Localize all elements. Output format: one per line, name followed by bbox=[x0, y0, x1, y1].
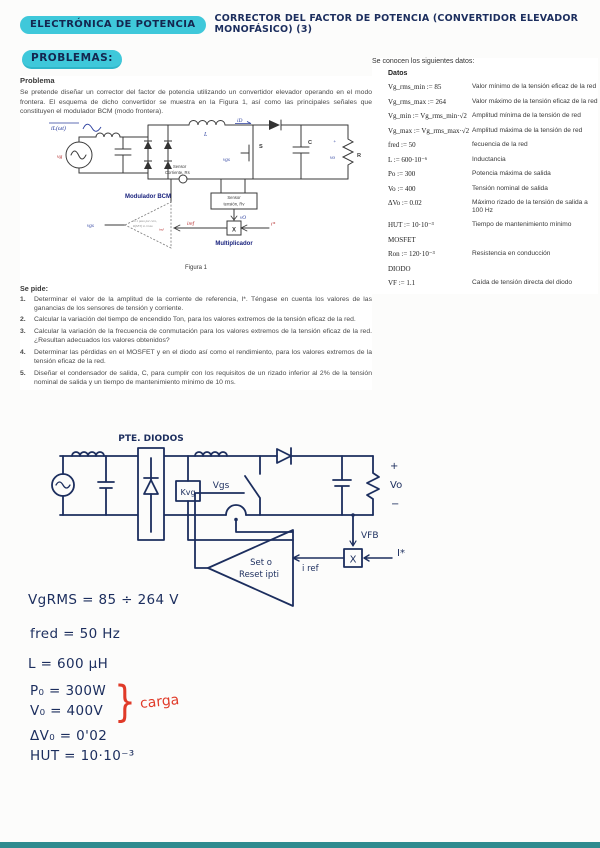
datos-row: Vg_rms_max := 264Valor máximo de la tens… bbox=[388, 98, 598, 106]
datos-desc: Tensión nominal de salida bbox=[472, 185, 598, 193]
datos-desc: Valor mínimo de la tensión eficaz de la … bbox=[472, 83, 598, 91]
note-vo: V₀ = 400V bbox=[30, 702, 106, 722]
label-sensor-v-1: Sensor bbox=[227, 195, 241, 200]
course-tag: ELECTRÓNICA DE POTENCIA bbox=[20, 16, 206, 34]
datos-expr: MOSFET bbox=[388, 236, 472, 244]
datos-desc: Potencia máxima de salida bbox=[472, 170, 598, 178]
datos-expr: DIODO bbox=[388, 265, 472, 273]
se-pide-heading: Se pide: bbox=[20, 284, 372, 293]
datos-row: Ron := 120·10⁻³Resistencia en conducción bbox=[388, 250, 598, 258]
label-C: C bbox=[308, 140, 312, 146]
datos-expr: Vo := 400 bbox=[388, 185, 472, 193]
datos-expr: HUT := 10·10⁻³ bbox=[388, 221, 472, 229]
label-il: iL(ωt) bbox=[51, 125, 66, 132]
datos-expr: Vg_max := Vg_rms_max·√2 bbox=[388, 127, 472, 135]
item-text: Determinar el valor de la amplitud de la… bbox=[34, 295, 372, 313]
page-header: ELECTRÓNICA DE POTENCIA CORRECTOR DEL FA… bbox=[20, 14, 590, 36]
note-vgrms: VgRMS = 85 ÷ 264 V bbox=[28, 592, 179, 608]
note-po: P₀ = 300W bbox=[30, 682, 106, 702]
page-title: CORRECTOR DEL FACTOR DE POTENCIA (CONVER… bbox=[215, 14, 590, 36]
page-bottom-bar bbox=[0, 842, 600, 848]
problem-body: Se pretende diseñar un corrector del fac… bbox=[20, 88, 372, 117]
figura-1-caption: Figura 1 bbox=[185, 265, 208, 271]
note-fred: fred = 50 Hz bbox=[30, 626, 120, 642]
datos-row: Vg_rms_min := 85Valor mínimo de la tensi… bbox=[388, 83, 598, 91]
datos-heading: Se conocen los siguientes datos: bbox=[372, 58, 598, 65]
datos-expr: Ron := 120·10⁻³ bbox=[388, 250, 472, 258]
label-vo-plus: + bbox=[333, 140, 336, 145]
datos-expr: Vg_rms_max := 264 bbox=[388, 98, 472, 106]
datos-expr: Po := 300 bbox=[388, 170, 472, 178]
datos-desc bbox=[472, 265, 598, 273]
datos-desc: Caída de tensión directa del diodo bbox=[472, 279, 598, 287]
item-number: 2. bbox=[20, 315, 34, 324]
label-iref-sketch: i ref bbox=[302, 564, 320, 574]
datos-desc: Amplitud mínima de la tensión de red bbox=[472, 112, 598, 120]
label-iref: iref bbox=[187, 220, 196, 227]
label-comparator-line2: Reset ipti bbox=[239, 570, 279, 580]
datos-row: Vo := 400Tensión nominal de salida bbox=[388, 185, 598, 193]
item-number: 5. bbox=[20, 369, 34, 387]
datos-expr: fred := 50 bbox=[388, 141, 472, 149]
datos-expr: Vg_rms_min := 85 bbox=[388, 83, 472, 91]
label-sensor-v-2: tensión, Rv bbox=[224, 201, 246, 206]
label-id: iD bbox=[237, 118, 242, 124]
label-mod-tiny-2: R(SET) si cruza bbox=[132, 224, 153, 228]
label-vo-sketch: Vo bbox=[390, 480, 402, 491]
label-vgs-sketch: Vgs bbox=[213, 481, 230, 491]
carga-brace: } bbox=[114, 677, 136, 727]
label-kvg: Kvg bbox=[180, 488, 195, 497]
datos-expr: ΔVo := 0.02 bbox=[388, 199, 472, 215]
se-pide-item: 1. Determinar el valor de la amplitud de… bbox=[20, 295, 372, 313]
label-R: R bbox=[357, 153, 361, 159]
se-pide-item: 3. Calcular la variación de la frecuenci… bbox=[20, 327, 372, 345]
section-tag-problemas: PROBLEMAS: bbox=[22, 50, 122, 69]
datos-row: Po := 300Potencia máxima de salida bbox=[388, 170, 598, 178]
note-carga: carga bbox=[139, 692, 180, 712]
label-vgs-fet: vgs bbox=[223, 157, 230, 163]
item-number: 4. bbox=[20, 348, 34, 366]
item-number: 3. bbox=[20, 327, 34, 345]
datos-row: VF := 1.1Caída de tensión directa del di… bbox=[388, 279, 598, 287]
note-hut: HUT = 10·10⁻³ bbox=[30, 748, 135, 764]
label-vo-plus-sketch: + bbox=[390, 461, 398, 472]
datos-panel-image: Se conocen los siguientes datos: Datos V… bbox=[372, 58, 598, 294]
label-vfb: VFB bbox=[361, 531, 379, 541]
figura-1-schematic: iL(ωt) L iD vgs vo + vO vgs S C R Sensor… bbox=[20, 117, 372, 275]
label-istar: i* bbox=[271, 221, 275, 227]
datos-desc: Amplitud máxima de la tensión de red bbox=[472, 127, 598, 135]
datos-row: ΔVo := 0.02Máximo rizado de la tensión d… bbox=[388, 199, 598, 215]
label-mod-iref: iref bbox=[159, 227, 165, 231]
label-S: S bbox=[259, 144, 263, 150]
datos-expr: VF := 1.1 bbox=[388, 279, 472, 287]
note-load-group: P₀ = 300W V₀ = 400V } carga bbox=[30, 682, 179, 722]
label-vg: vg bbox=[57, 154, 62, 160]
datos-desc: Máximo rizado de la tensión de salida a … bbox=[472, 199, 598, 215]
datos-row: MOSFET bbox=[388, 236, 598, 244]
label-x-sketch: X bbox=[350, 555, 357, 566]
datos-row: HUT := 10·10⁻³Tiempo de mantenimiento mí… bbox=[388, 221, 598, 229]
datos-row: L := 600·10⁻⁶Inductancia bbox=[388, 156, 598, 164]
item-text: Calcular la variación del tiempo de ence… bbox=[34, 315, 372, 324]
label-multiplicador: Multiplicador bbox=[215, 241, 253, 247]
label-vO-sensor: vO bbox=[240, 215, 246, 221]
datos-expr: L := 600·10⁻⁶ bbox=[388, 156, 472, 164]
label-istar-sketch: I* bbox=[397, 548, 405, 559]
datos-expr: Vg_min := Vg_rms_min·√2 bbox=[388, 112, 472, 120]
se-pide-item: 5. Diseñar el condensador de salida, C, … bbox=[20, 369, 372, 387]
se-pide-item: 4. Determinar las pérdidas en el MOSFET … bbox=[20, 348, 372, 366]
datos-row: DIODO bbox=[388, 265, 598, 273]
datos-desc bbox=[472, 236, 598, 244]
item-text: Determinar las pérdidas en el MOSFET y e… bbox=[34, 348, 372, 366]
datos-desc: fecuencia de la red bbox=[472, 141, 598, 149]
label-vo-minus-sketch: − bbox=[391, 499, 399, 510]
label-vgs-mod: vgs bbox=[87, 223, 94, 229]
datos-row: Vg_min := Vg_rms_min·√2Amplitud mínima d… bbox=[388, 112, 598, 120]
datos-desc: Tiempo de mantenimiento mínimo bbox=[472, 221, 598, 229]
item-text: Calcular la variación de la frecuencia d… bbox=[34, 327, 372, 345]
datos-subheading: Datos bbox=[388, 70, 598, 77]
se-pide-item: 2. Calcular la variación del tiempo de e… bbox=[20, 315, 372, 324]
note-ripple: ΔV₀ = 0'02 bbox=[30, 728, 107, 744]
label-sensor-i-1: Sensor bbox=[173, 164, 187, 169]
item-number: 1. bbox=[20, 295, 34, 313]
datos-row: fred := 50fecuencia de la red bbox=[388, 141, 598, 149]
datos-row: Vg_max := Vg_rms_max·√2Amplitud máxima d… bbox=[388, 127, 598, 135]
problem-statement-image: Problema Se pretende diseñar un correcto… bbox=[20, 76, 372, 390]
label-sensor-i-2: Corriente, Rs bbox=[165, 170, 190, 175]
datos-desc: Resistencia en conducción bbox=[472, 250, 598, 258]
label-vo: vo bbox=[330, 155, 335, 161]
item-text: Diseñar el condensador de salida, C, par… bbox=[34, 369, 372, 387]
label-modulador-bcm: Modulador BCM bbox=[125, 194, 171, 200]
label-pte-diodos: PTE. DIODOS bbox=[118, 434, 184, 444]
note-inductance: L = 600 μH bbox=[28, 656, 108, 672]
datos-desc: Inductancia bbox=[472, 156, 598, 164]
label-L: L bbox=[203, 132, 208, 138]
label-comparator-line1: Set o bbox=[250, 558, 272, 568]
label-x-multiplier: X bbox=[232, 227, 236, 233]
problem-heading: Problema bbox=[20, 76, 372, 85]
datos-desc: Valor máximo de la tensión eficaz de la … bbox=[472, 98, 598, 106]
